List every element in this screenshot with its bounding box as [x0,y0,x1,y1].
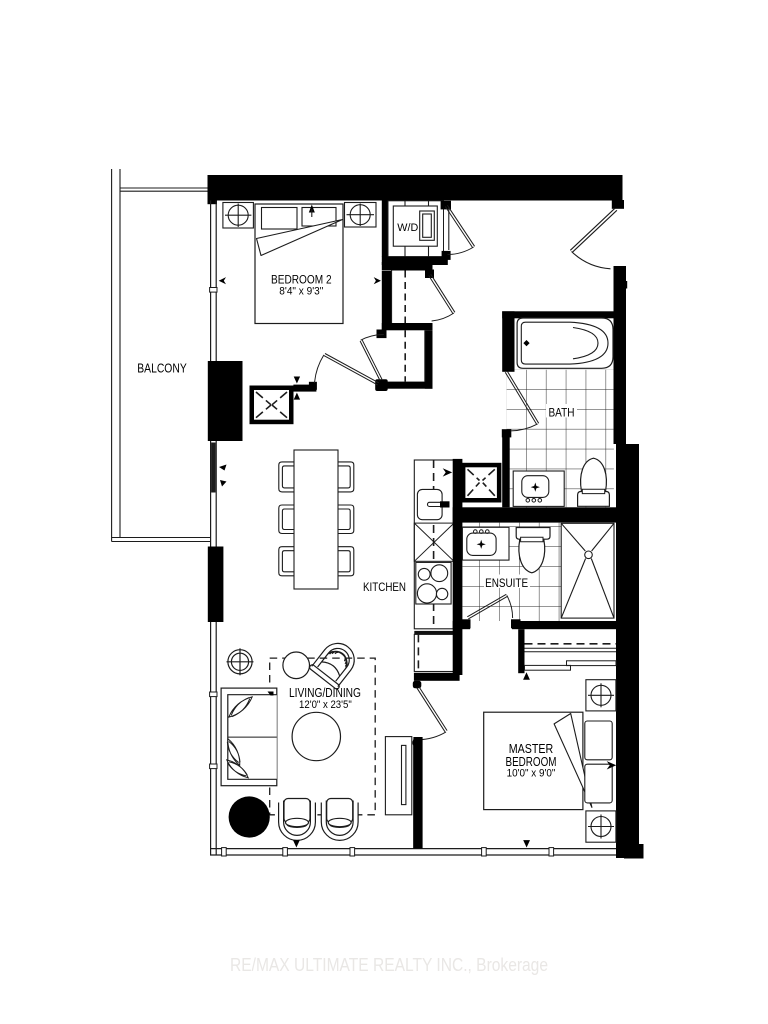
svg-text:LIVING/DINING: LIVING/DINING [289,685,361,700]
svg-text:KITCHEN: KITCHEN [363,580,406,594]
svg-text:RE/MAX ULTIMATE REALTY INC., B: RE/MAX ULTIMATE REALTY INC., Brokerage [230,955,548,975]
svg-text:BATH: BATH [549,405,575,419]
svg-text:8'4" x 9'3": 8'4" x 9'3" [279,285,323,297]
svg-text:10'0" x 9'0": 10'0" x 9'0" [507,768,556,780]
svg-text:12'0" x 23'5": 12'0" x 23'5" [299,699,352,711]
svg-text:ENSUITE: ENSUITE [485,576,528,590]
svg-text:W/D: W/D [397,222,418,234]
svg-text:BALCONY: BALCONY [137,361,187,376]
